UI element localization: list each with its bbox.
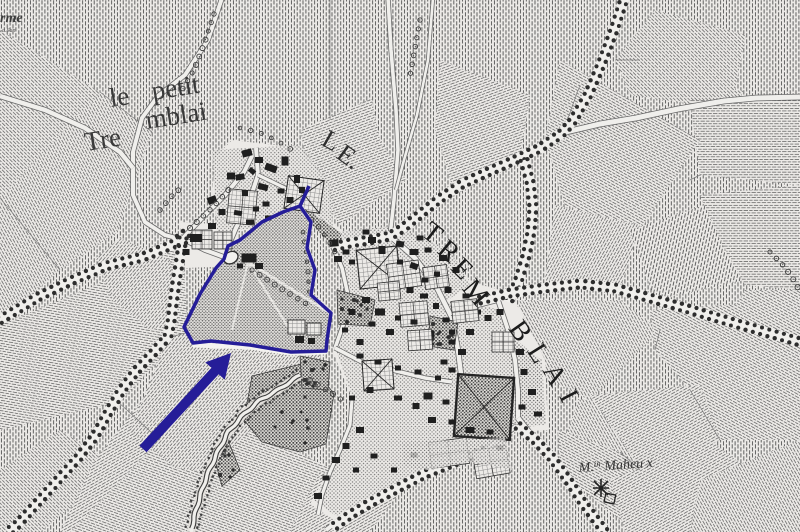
svg-text:a.San: a.San <box>2 28 16 34</box>
svg-text:Tre: Tre <box>82 122 123 157</box>
svg-text:rme: rme <box>0 11 23 26</box>
